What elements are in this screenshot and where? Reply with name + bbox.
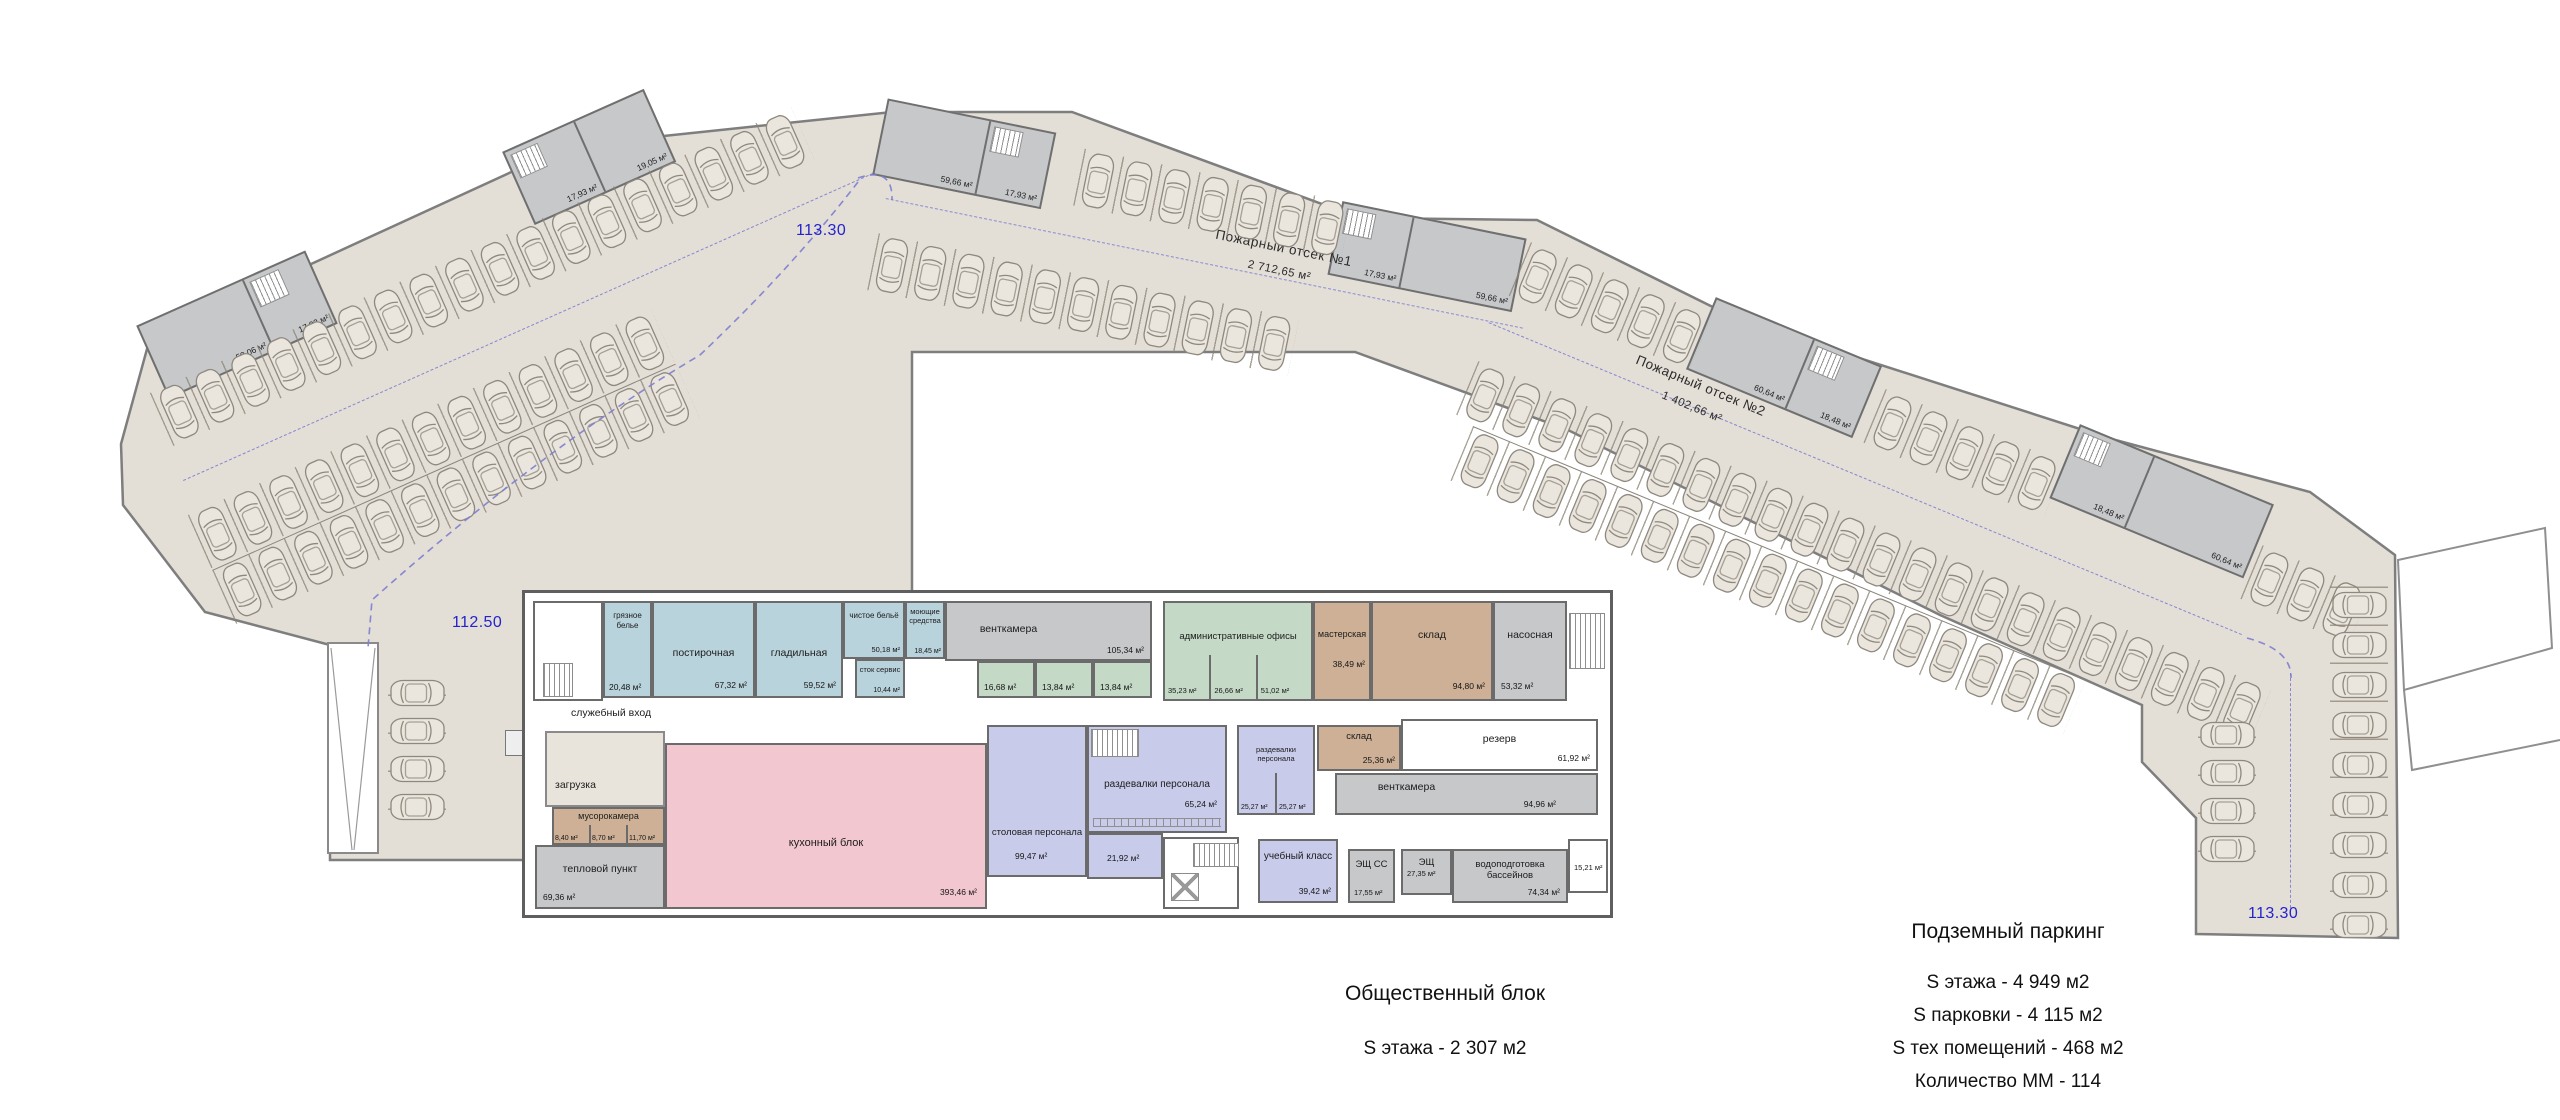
room-label: постирочная (654, 647, 753, 660)
room-area: 20,48 м² (609, 682, 641, 692)
room-area: 94,96 м² (1524, 799, 1556, 809)
car-icon (1177, 296, 1219, 359)
room-label: ЭЩ (1403, 857, 1450, 868)
room-label: тепловой пункт (537, 863, 663, 876)
room-area: 94,80 м² (1453, 681, 1485, 691)
room-area: 27,35 м² (1407, 869, 1436, 878)
room-area: 67,32 м² (715, 680, 747, 690)
room-area: 61,92 м² (1558, 753, 1590, 763)
car-icon (2330, 709, 2388, 740)
legend-line: S тех помещений - 468 м2 (1858, 1038, 2158, 1060)
car-icon (1306, 196, 1348, 259)
room-ventkamera-2: венткамера 94,96 м² (1335, 773, 1598, 815)
room-esh-ss: ЭЩ СС 17,55 м² (1348, 849, 1395, 903)
stairs-icon (249, 269, 290, 308)
room-area: 69,36 м² (543, 892, 575, 902)
legend-line: Количество ММ - 114 (1858, 1071, 2158, 1093)
legend-title: Общественный блок (1295, 982, 1595, 1006)
core-area: 18,48 м² (2092, 501, 2126, 523)
public-block: грязное белье 20,48 м² постирочная 67,32… (522, 590, 1613, 918)
car-icon (1192, 173, 1234, 236)
legend-title: Подземный паркинг (1858, 920, 2158, 944)
car-icon (2330, 869, 2388, 900)
room-label: раздевалки персонала (1089, 779, 1225, 791)
room-area: 8,70 м² (592, 835, 615, 842)
room-gladilnaya: гладильная 59,52 м² (755, 601, 843, 698)
room-esh: ЭЩ 27,35 м² (1401, 849, 1452, 895)
room-tech-1: 16,68 м² (977, 661, 1035, 698)
room-razdevalki-1: раздевалки персонала 65,24 м² (1087, 725, 1227, 833)
room-area: 16,68 м² (984, 682, 1016, 692)
room-label: венткамера (907, 623, 1110, 636)
legend-line: S этажа - 4 949 м2 (1858, 972, 2158, 994)
car-icon (388, 677, 446, 708)
elevation-mark-top: 113.30 (796, 222, 846, 240)
room-stok-servis: сток сервис 10,44 м² (855, 659, 905, 698)
room-tech-3: 13,84 м² (1093, 661, 1152, 698)
car-icon (2330, 789, 2388, 820)
parking-row (2330, 570, 2388, 930)
car-icon (871, 234, 913, 297)
car-icon (2198, 719, 2256, 750)
room-sklad-2: склад 25,36 м² (1317, 725, 1401, 771)
room-gryaznoe-belye: грязное белье 20,48 м² (603, 601, 652, 698)
floor-plan-canvas: 59,06 м² 17,93 м² 17,93 м² 19,05 м² 59,6… (0, 0, 2560, 1120)
legend-line: S этажа - 2 307 м2 (1295, 1038, 1595, 1060)
room-label: чистое бельё (845, 611, 903, 621)
stairs-icon (1807, 346, 1845, 382)
room-ucheb-klass: учебный класс 39,42 м² (1258, 839, 1338, 903)
room-area: 18,45 м² (914, 648, 941, 655)
car-icon (2330, 749, 2388, 780)
room-area: 15,21 м² (1574, 863, 1603, 872)
room-ventkamera-1: венткамера 105,34 м² (945, 601, 1152, 661)
stairs-icon (1091, 729, 1139, 757)
room-label: резерв (1403, 733, 1596, 746)
stairs-icon (1569, 613, 1605, 669)
room-vodopodgotovka: водоподготовка бассейнов 74,34 м² (1452, 849, 1568, 903)
room-sklad-1: склад 94,80 м² (1371, 601, 1493, 701)
car-icon (2198, 795, 2256, 826)
room-rezerv: резерв 61,92 м² (1401, 719, 1598, 771)
car-icon (1115, 157, 1157, 220)
elevation-mark-left: 112.50 (452, 614, 502, 632)
room-label: раздевалки персонала (1239, 745, 1313, 763)
room-masterskaya: мастерская 38,49 м² (1313, 601, 1371, 701)
core-area: 59,66 м² (940, 174, 974, 190)
room-label: административные офисы (1165, 631, 1311, 642)
room-area: 99,47 м² (1015, 851, 1047, 861)
room-zagruzka: загрузка (545, 731, 665, 807)
room-stolovaya: столовая персонала 99,47 м² (987, 725, 1087, 877)
legend-line: S парковки - 4 115 м2 (1858, 1005, 2158, 1027)
elevation-mark-bottom: 113.30 (2248, 905, 2298, 923)
car-icon (2330, 669, 2388, 700)
car-icon (2198, 833, 2256, 864)
car-icon (1153, 165, 1195, 228)
room-area: 25,27 м² (1279, 804, 1306, 811)
room-label: загрузка (547, 779, 671, 792)
car-icon (2330, 629, 2388, 660)
ramp (327, 642, 379, 854)
room-area: 13,84 м² (1100, 682, 1132, 692)
car-icon (2330, 589, 2388, 620)
parking-strip-d: 113.30 (2190, 555, 2398, 938)
elevator-icon (1171, 873, 1199, 901)
car-icon (1215, 304, 1257, 367)
room-area: 393,46 м² (940, 887, 977, 897)
service-entrance-label: служебный вход (571, 707, 651, 719)
room-postirochnaya: постирочная 67,32 м² (652, 601, 755, 698)
room-area: 10,44 м² (873, 687, 900, 694)
car-icon (388, 791, 446, 822)
room-label: столовая персонала (989, 827, 1085, 838)
room-razdevalki-2: раздевалки персонала 25,27 м² 25,27 м² (1237, 725, 1315, 815)
stairs-icon (1193, 843, 1239, 867)
room-label: склад (1373, 629, 1491, 642)
room-area: 74,34 м² (1528, 887, 1560, 897)
room-label: мастерская (1315, 629, 1369, 640)
car-icon (388, 753, 446, 784)
stairs-icon (543, 663, 573, 697)
stairs-icon (2073, 432, 2111, 468)
room-nasosnaya: насосная 53,32 м² (1493, 601, 1567, 701)
room-area: 17,55 м² (1354, 888, 1383, 897)
core-area: 18,48 м² (1819, 410, 1853, 432)
room-area: 53,32 м² (1501, 681, 1533, 691)
stairs-icon (989, 126, 1024, 157)
room-admin-offices: административные офисы 35,23 м² 26,66 м²… (1163, 601, 1313, 701)
room-label: грязное белье (605, 611, 650, 630)
car-icon (1268, 188, 1310, 251)
room-area: 59,52 м² (804, 680, 836, 690)
stairs-icon (510, 143, 548, 179)
car-icon (1253, 312, 1295, 375)
room-area: 25,36 м² (1363, 755, 1395, 765)
room-area: 21,92 м² (1107, 853, 1139, 863)
room-area: 39,42 м² (1299, 886, 1331, 896)
room-label: склад (1319, 731, 1399, 742)
car-icon (2198, 757, 2256, 788)
room-label: учебный класс (1260, 851, 1336, 863)
room-teplovoy-punkt: тепловой пункт 69,36 м² (535, 845, 665, 909)
room-area: 13,84 м² (1042, 682, 1074, 692)
room-entry (533, 601, 603, 701)
car-icon (1077, 150, 1119, 213)
room-label: гладильная (757, 647, 841, 660)
car-icon (986, 257, 1028, 320)
car-icon (1024, 265, 1066, 328)
room-label: сток сервис (857, 665, 903, 674)
parking-apron-column (386, 652, 456, 822)
car-icon (2330, 829, 2388, 860)
room-chistoe-belye: чистое бельё 50,18 м² (843, 601, 905, 659)
room-label: ЭЩ СС (1350, 859, 1393, 870)
room-tech-2: 13,84 м² (1035, 661, 1093, 698)
car-icon (1062, 273, 1104, 336)
room-area: 26,66 м² (1214, 686, 1243, 695)
car-icon (1100, 281, 1142, 344)
car-icon (1230, 181, 1272, 244)
room-area: 105,34 м² (1107, 645, 1144, 655)
legend-public-block: Общественный блок S этажа - 2 307 м2 (1295, 982, 1595, 1060)
room-area: 11,70 м² (629, 835, 655, 842)
drive-lane-line-d (2290, 673, 2291, 913)
room-area: 51,02 м² (1261, 686, 1290, 695)
room-label: водоподготовка бассейнов (1454, 859, 1566, 882)
room-2192: 21,92 м² (1087, 833, 1163, 879)
room-label: насосная (1495, 629, 1565, 642)
room-area: 65,24 м² (1185, 799, 1217, 809)
car-icon (947, 250, 989, 313)
car-icon (909, 242, 951, 305)
parking-row (388, 658, 446, 810)
car-icon (2330, 909, 2388, 940)
room-area: 38,49 м² (1333, 659, 1365, 669)
room-1521: 15,21 м² (1568, 839, 1608, 893)
room-area: 35,23 м² (1168, 686, 1197, 695)
room-musorokamera: мусорокамера 8,40 м² 8,70 м² 11,70 м² (552, 807, 665, 845)
core-area: 17,93 м² (1004, 187, 1038, 203)
room-area: 8,40 м² (555, 835, 578, 842)
room-area: 25,27 м² (1241, 804, 1268, 811)
legend-underground-parking: Подземный паркинг S этажа - 4 949 м2 S п… (1858, 920, 2158, 1093)
car-icon (1139, 289, 1181, 352)
stair-core (1163, 837, 1239, 909)
room-kuhonny-blok: кухонный блок 393,46 м² (665, 743, 987, 909)
room-area: 50,18 м² (871, 645, 900, 654)
room-label: кухонный блок (667, 837, 985, 850)
car-icon (388, 715, 446, 746)
room-label: венткамера (1277, 781, 1536, 794)
parking-row (2198, 700, 2256, 852)
bench (1093, 818, 1221, 827)
room-label: мусорокамера (554, 811, 663, 822)
